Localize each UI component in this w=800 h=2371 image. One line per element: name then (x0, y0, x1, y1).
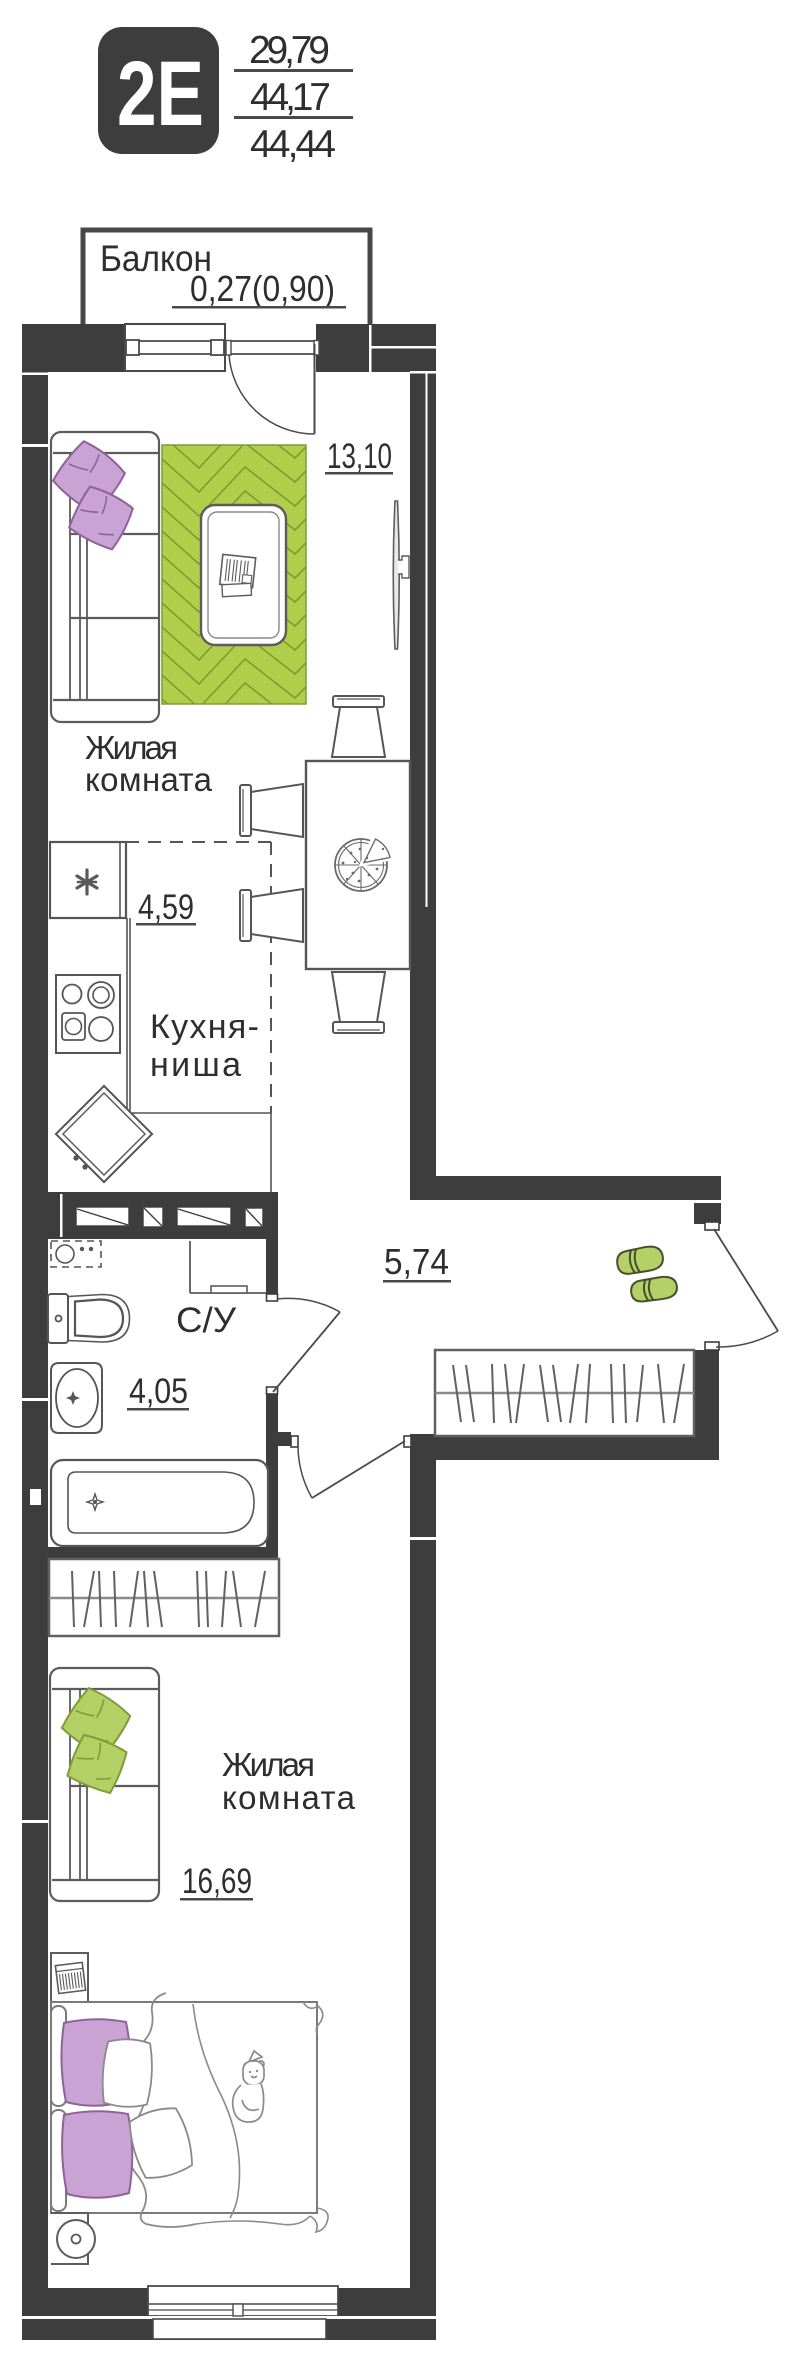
svg-text:0,27(0,90): 0,27(0,90) (190, 268, 335, 309)
svg-text:Кухня-: Кухня- (150, 1008, 259, 1046)
svg-text:С/У: С/У (176, 1301, 237, 1340)
svg-text:5,74: 5,74 (384, 1241, 449, 1282)
svg-text:16,69: 16,69 (182, 1862, 252, 1901)
svg-text:Жилая: Жилая (222, 1746, 315, 1783)
svg-text:44,44: 44,44 (250, 123, 336, 166)
svg-text:29,79: 29,79 (249, 29, 330, 72)
svg-text:ниша: ниша (150, 1046, 241, 1084)
svg-text:44,17: 44,17 (250, 76, 331, 119)
svg-text:13,10: 13,10 (327, 437, 392, 476)
svg-text:4,59: 4,59 (138, 888, 194, 927)
svg-text:4,05: 4,05 (129, 1372, 188, 1411)
svg-text:комната: комната (85, 761, 213, 798)
svg-text:2Е: 2Е (117, 43, 204, 145)
